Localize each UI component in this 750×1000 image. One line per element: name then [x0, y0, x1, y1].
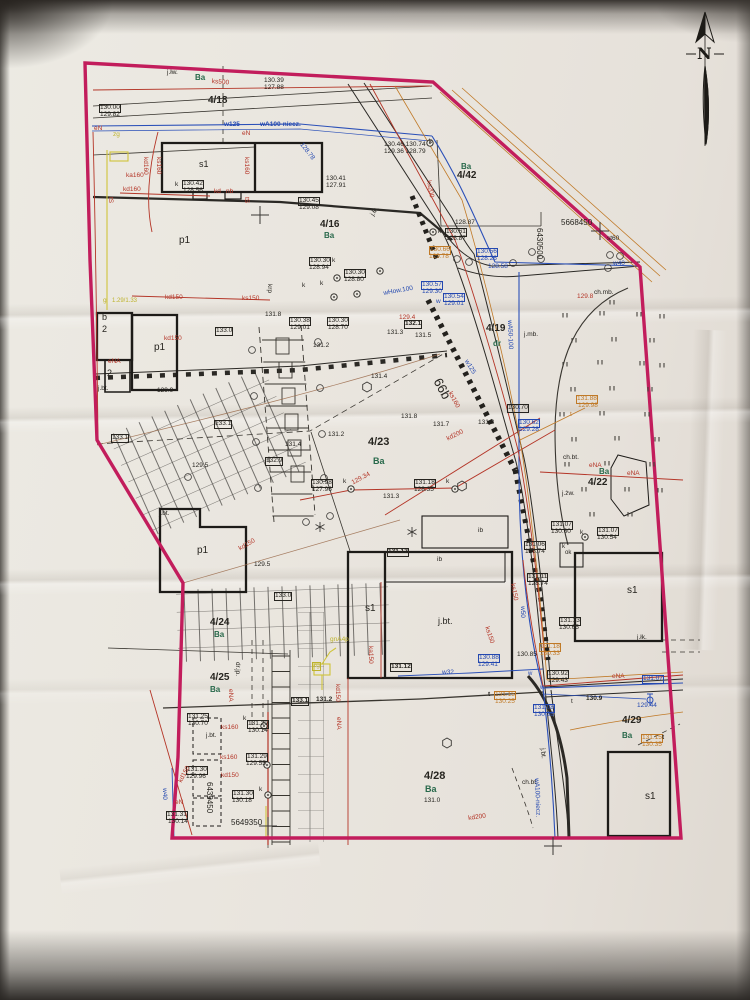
map-label: 131.3: [383, 494, 399, 501]
map-label: j.bt.: [438, 617, 453, 626]
map-label: tS: [107, 197, 114, 203]
map-label: b: [102, 313, 107, 322]
grass-tuft-icon: [645, 412, 649, 417]
map-label: 129.41: [478, 662, 498, 669]
map-label: kd160: [123, 187, 141, 194]
map-label: 5668450: [561, 219, 592, 227]
map-label: 129.44: [637, 703, 657, 710]
map-label: ks160: [155, 157, 162, 174]
map-label: nb: [226, 189, 233, 196]
map-label: s1: [199, 160, 209, 169]
map-label: 129.08: [299, 205, 319, 212]
grass-tuft-icon: [605, 461, 609, 466]
map-label: kd150: [334, 684, 341, 702]
map-label: 4/24: [210, 618, 229, 628]
map-label: j.mb.: [524, 332, 538, 339]
map-label: 4/28: [424, 771, 445, 782]
manhole-dot: [333, 296, 335, 298]
map-label: Ba: [324, 232, 334, 240]
map-label: w: [528, 671, 532, 677]
map-label: 128.56: [183, 188, 203, 195]
map-label: 129.28: [519, 427, 539, 434]
map-label: k: [446, 479, 449, 486]
map-label: k: [438, 229, 441, 236]
map-label: j.bt.: [206, 733, 216, 740]
map-label: 131.2: [328, 432, 344, 439]
map-label: 127.96: [312, 487, 332, 494]
map-label: kd: [214, 189, 221, 196]
map-label: k: [302, 283, 305, 290]
map-label: wA50-100: [506, 320, 514, 349]
grass-tuft-icon: [565, 462, 569, 467]
map-label: k: [259, 787, 262, 794]
map-label: p1: [154, 343, 165, 353]
map-label: 131.12: [388, 549, 408, 556]
grass-tuft-icon: [571, 387, 575, 392]
map-label: ib: [478, 528, 483, 535]
map-label: 4/19: [486, 324, 505, 334]
grass-tuft-icon: [610, 386, 614, 391]
map-label: eNA: [335, 717, 342, 730]
map-label: 127.91: [326, 183, 346, 190]
map-label: 4/22: [588, 478, 607, 488]
map-label: 130.60: [551, 529, 571, 536]
map-label: w50: [519, 606, 526, 618]
map-label: t: [662, 735, 664, 742]
map-label: eNA: [627, 471, 640, 478]
survey-map-drawing: [0, 0, 750, 1000]
map-label: krp: [266, 284, 273, 293]
map-label: Ba: [214, 631, 224, 639]
map-label: 129.78: [429, 254, 449, 261]
grass-tuft-icon: [612, 337, 616, 342]
grass-tuft-icon: [650, 338, 654, 343]
map-label: w: [436, 299, 441, 306]
map-label: Ba: [599, 468, 609, 476]
map-label: 131.3: [478, 420, 494, 427]
map-label: dr: [493, 340, 501, 348]
map-label: wA100-niecz.: [260, 122, 301, 129]
grass-tuft-icon: [600, 311, 604, 316]
north-arrow: [686, 12, 724, 146]
tree-icon: [327, 513, 334, 520]
map-label: j.bt.: [159, 511, 169, 518]
tree-icon: [466, 259, 473, 266]
map-label: 129.98: [578, 403, 598, 410]
tree-star-icon: [316, 522, 325, 532]
grass-tuft-icon: [582, 487, 586, 492]
grass-tuft-icon: [572, 437, 576, 442]
map-label: 129.36 128.79: [384, 149, 426, 156]
map-label: 130.85: [517, 652, 537, 659]
map-label: 131.8: [401, 414, 417, 421]
map-label: 128.74: [528, 581, 548, 588]
grass-tuft-icon: [563, 313, 567, 318]
manhole-dot: [356, 293, 358, 295]
map-label: 128.70: [328, 325, 348, 332]
map-label: w32: [442, 670, 454, 677]
grass-tuft-icon: [655, 437, 659, 442]
map-label: j.żw.: [562, 491, 575, 498]
map-label: 130.54: [597, 535, 617, 542]
map-label: 128.35: [414, 487, 434, 494]
map-label: k: [580, 530, 583, 537]
map-label: Ba: [622, 732, 632, 740]
map-label: eN: [94, 126, 102, 133]
map-label: 6439450: [205, 782, 213, 813]
tree-icon: [607, 252, 614, 259]
map-label: g: [103, 298, 107, 305]
tree-icon: [317, 385, 324, 392]
map-label: ks150: [242, 296, 259, 303]
map-label: ks160: [243, 157, 250, 174]
map-label: 130.65: [559, 625, 579, 632]
map-label: 129.30: [422, 289, 442, 296]
map-label: k: [429, 139, 432, 146]
map-label: s1: [365, 604, 376, 614]
map-label: zg: [313, 663, 320, 670]
map-label: eNA: [612, 674, 625, 681]
map-label: 133.0: [216, 328, 232, 335]
map-label: 128.87: [446, 236, 466, 243]
map-label: k: [175, 182, 178, 189]
map-label: 131.2: [316, 697, 332, 704]
map-label: kd160: [142, 157, 149, 175]
map-label: k: [320, 281, 323, 288]
map-label: kd150: [164, 336, 182, 343]
map-label: ch.bt.: [563, 455, 579, 462]
map-label: 130.36: [534, 712, 554, 719]
manhole-dot: [454, 488, 456, 490]
map-label: 130.70: [508, 405, 528, 412]
map-label: p1: [197, 546, 208, 556]
map-label: 2: [102, 325, 107, 334]
map-label: 129.96: [186, 774, 206, 781]
map-symbols: [185, 140, 664, 855]
map-label: 4/29: [622, 716, 641, 726]
map-label: 130.14: [168, 819, 188, 826]
map-label: 132.1: [405, 321, 421, 328]
map-label: 1.29/1.33: [112, 298, 137, 304]
map-label: j.łk.: [637, 635, 647, 642]
map-label: 128.58: [488, 264, 508, 271]
map-label: 129.43: [548, 678, 568, 685]
map-label: eNA: [227, 689, 234, 702]
map-label: 4/16: [320, 220, 339, 230]
map-label: 133.1: [112, 435, 128, 442]
map-label: 131.3: [387, 330, 403, 337]
map-label: 129.55: [246, 761, 266, 768]
map-label: 129.5: [254, 562, 270, 569]
map-label: p1: [179, 236, 190, 246]
north-label: N: [697, 44, 712, 63]
map-label: k: [343, 479, 346, 486]
grass-tuft-icon: [658, 488, 662, 493]
map-label: ok: [565, 550, 571, 556]
map-label: 130.9: [586, 696, 602, 703]
map-label: 131.7: [433, 422, 449, 429]
map-label: eN: [175, 800, 183, 807]
map-label: 129.82: [100, 112, 120, 119]
map-label: 4/23: [368, 437, 389, 448]
tree-icon: [249, 347, 256, 354]
map-label: 130.33: [540, 651, 560, 658]
map-label: 131.12: [391, 664, 411, 671]
manhole-dot: [266, 764, 268, 766]
map-label: t: [571, 699, 573, 706]
map-label: 132.9: [266, 458, 282, 465]
grass-tuft-icon: [625, 487, 629, 492]
tree-icon: [319, 431, 326, 438]
map-label: 130.18: [232, 798, 252, 805]
grass-tuft-icon: [637, 312, 641, 317]
manhole-dot: [350, 488, 352, 490]
map-label: 5649350: [231, 819, 262, 827]
map-label: 131.4: [371, 374, 387, 381]
map-label: 128.80: [344, 277, 364, 284]
map-label: zg: [113, 132, 120, 139]
map-label: dr.jp.: [234, 662, 241, 676]
manhole-dot: [267, 794, 269, 796]
map-label: 131.4: [285, 442, 301, 449]
map-label: j.łw.: [167, 70, 178, 77]
map-label: 130.14: [248, 728, 268, 735]
map-label: s1: [645, 792, 656, 802]
map-label: w125: [224, 122, 240, 129]
tree-icon: [303, 519, 310, 526]
map-label: 129.8: [577, 294, 593, 301]
map-label: 129.01: [444, 301, 464, 308]
grass-tuft-icon: [640, 361, 644, 366]
map-label: ks500: [211, 79, 229, 87]
map-label: 2: [107, 369, 112, 378]
map-label: Ba: [195, 74, 205, 82]
map-label: w40: [613, 261, 625, 268]
map-label: 129.01: [290, 325, 310, 332]
map-label: gnA4p: [330, 637, 349, 644]
grass-tuft-icon: [598, 360, 602, 365]
map-label: ks160: [221, 725, 238, 732]
map-label: ks160: [220, 755, 237, 762]
map-label: wA100-niecz.: [533, 778, 541, 817]
map-label: 4/25: [210, 673, 229, 683]
map-label: 131.07: [643, 676, 663, 683]
map-label: st60: [607, 236, 619, 243]
map-label: 6430500: [535, 228, 543, 259]
map-label: 129.5: [192, 463, 208, 470]
map-label: eNA: [108, 359, 121, 366]
manhole-dot: [432, 231, 434, 233]
map-label: 130.25: [495, 699, 515, 706]
map-label: ib: [437, 557, 442, 564]
map-label: 130.35: [642, 742, 662, 749]
grass-tuft-icon: [610, 300, 614, 305]
map-label: 128.26: [477, 256, 497, 263]
manhole-dot: [336, 277, 338, 279]
map-label: w40: [161, 788, 168, 800]
map-label: k: [332, 258, 335, 265]
map-label: 4/42: [457, 171, 476, 181]
tree-hex-icon: [443, 738, 452, 748]
map-label: ka150: [367, 646, 374, 664]
manhole-dot: [584, 536, 586, 538]
map-label: j.bt.: [98, 386, 108, 393]
map-label: 133.1: [215, 421, 231, 428]
grass-tuft-icon: [660, 314, 664, 319]
grid-cross-icon: [251, 206, 269, 224]
map-label: 133.1: [292, 698, 308, 705]
map-label: 128.87: [455, 220, 475, 227]
map-label: 4/18: [208, 96, 227, 106]
map-label: 131.8: [265, 312, 281, 319]
grass-tuft-icon: [560, 412, 564, 417]
map-label: tS: [243, 197, 250, 203]
grass-tuft-icon: [600, 411, 604, 416]
map-label: t: [570, 412, 572, 419]
map-label: 129.9: [157, 388, 173, 395]
tree-star-icon: [408, 527, 417, 537]
map-label: kd150: [221, 773, 239, 780]
map-label: kd150: [165, 295, 183, 302]
map-label: w: [540, 685, 544, 691]
manhole-dot: [379, 270, 381, 272]
map-label: 131.5: [415, 333, 431, 340]
photo-of-survey-map: { "north_arrow": {"label": "N"}, "map": …: [0, 0, 750, 1000]
map-label: 131.2: [313, 343, 329, 350]
map-label: s1: [627, 586, 638, 596]
map-label: 130.70: [188, 721, 208, 728]
map-label: Ba: [373, 457, 385, 466]
map-label: 127.88: [264, 85, 284, 92]
map-label: 131.0: [424, 798, 440, 805]
map-label: ch.mb.: [594, 290, 614, 297]
grass-tuft-icon: [660, 363, 664, 368]
map-label: Ba: [425, 785, 437, 794]
map-label: eN: [242, 131, 250, 138]
map-label: j.bt.: [539, 748, 546, 759]
map-label: Ba: [210, 686, 220, 694]
map-label: 133.0: [275, 593, 291, 600]
map-label: k: [243, 716, 246, 723]
grass-tuft-icon: [615, 436, 619, 441]
map-label: t: [488, 692, 490, 699]
map-label: 128.94: [309, 265, 329, 272]
grass-tuft-icon: [590, 512, 594, 517]
tree-hex-icon: [363, 382, 372, 392]
map-label: 128.74: [525, 549, 545, 556]
